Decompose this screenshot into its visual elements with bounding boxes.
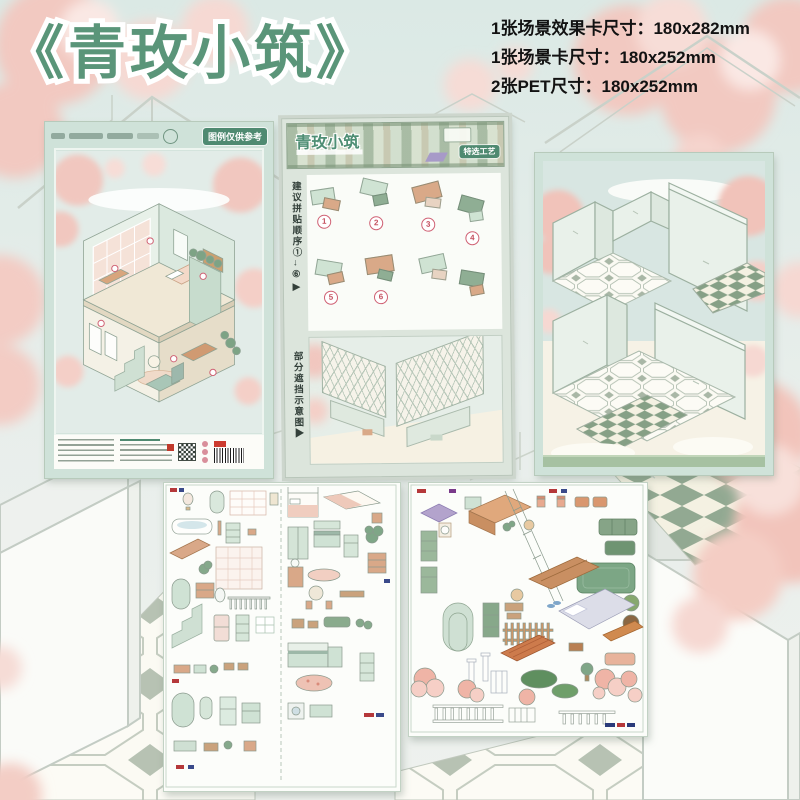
qr-code (178, 443, 196, 461)
step-number: 1 (317, 215, 331, 229)
stamp-box (443, 127, 471, 142)
reference-only-badge: 图例仅供参考 (203, 128, 267, 145)
pet-sheet-2-stickers (409, 483, 645, 734)
fine-print-block (137, 133, 159, 139)
effect-card-info-strip (54, 435, 264, 469)
scene-effect-card: 图例仅供参考 (45, 122, 273, 478)
lattice-wall (396, 335, 484, 427)
pet-sheet-2 (408, 482, 648, 737)
product-title: 《青玫小筑》 《青玫小筑》 (6, 6, 506, 110)
pet-sheet-1 (163, 482, 401, 792)
manufacturer-text-block (58, 439, 114, 465)
fine-print-block (107, 133, 133, 139)
instruction-card: 青玫小筑 特选工艺 建议拼贴顺序①→⑥▶ 1 2 3 4 5 6 部分遮挡示意图… (281, 116, 513, 478)
effect-card-header: 图例仅供参考 (51, 126, 267, 146)
assembly-order-note: 建议拼贴顺序①→⑥▶ (288, 181, 304, 331)
craft-badge: 特选工艺 (459, 145, 499, 158)
instruction-banner: 青玫小筑 特选工艺 (286, 121, 504, 169)
barcode-block (214, 441, 244, 463)
cert-icons (202, 439, 208, 465)
step-number: 6 (374, 290, 388, 304)
step-number: 5 (324, 291, 338, 305)
spec-pet-sheet-size: 2张PET尺寸：180x252mm (491, 72, 797, 101)
occlusion-note: 部分遮挡示意图▶ (290, 351, 305, 461)
step-number: 2 (369, 216, 383, 230)
occlusion-diagram-panel (308, 335, 503, 465)
scene-card-illustration (543, 161, 765, 467)
info-text-block (120, 439, 172, 465)
product-showcase: 《青玫小筑》 《青玫小筑》 1张场景效果卡尺寸：180x282mm 1张场景卡尺… (0, 0, 800, 800)
pet-sheet-1-stickers (164, 483, 398, 789)
spec-scene-card-size: 1张场景卡尺寸：180x252mm (491, 43, 797, 72)
step-number: 3 (421, 218, 435, 232)
step-number: 4 (465, 231, 479, 245)
scene-card (535, 153, 773, 475)
fine-print-block (69, 133, 103, 139)
assembly-diagram-panel: 1 2 3 4 5 6 (307, 173, 503, 331)
subtitle-block (296, 149, 362, 155)
dollhouse-room (83, 204, 240, 402)
logo-circle (163, 129, 178, 144)
size-specs: 1张场景效果卡尺寸：180x282mm 1张场景卡尺寸：180x252mm 2张… (491, 14, 797, 101)
fine-print-block (51, 133, 65, 139)
barcode (214, 448, 244, 463)
product-title-text: 《青玫小筑》 (6, 6, 378, 102)
spec-effect-card-size: 1张场景效果卡尺寸：180x282mm (491, 14, 797, 43)
effect-card-illustration (54, 148, 264, 436)
